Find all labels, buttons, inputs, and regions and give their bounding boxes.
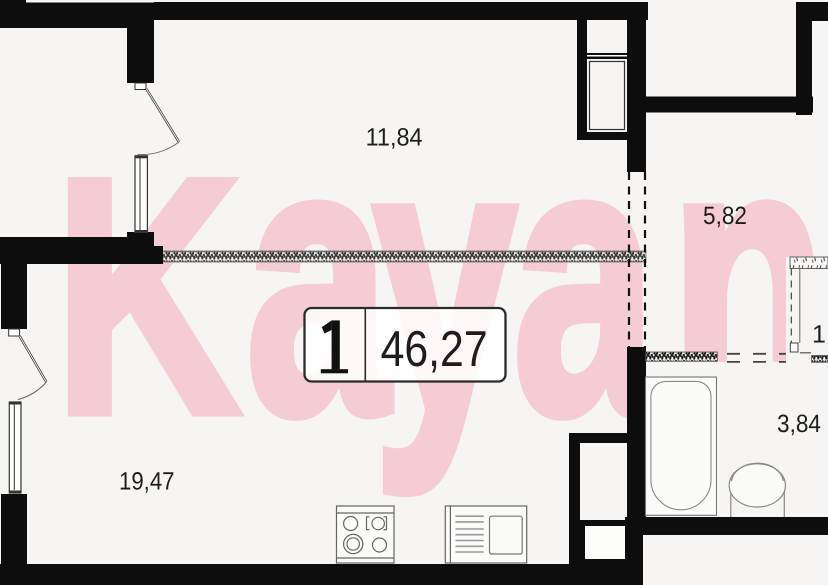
svg-text:5,82: 5,82 (703, 202, 747, 230)
svg-text:1,2: 1,2 (812, 321, 828, 349)
svg-text:19,47: 19,47 (119, 468, 175, 496)
svg-text:3,84: 3,84 (777, 410, 821, 438)
svg-text:11,84: 11,84 (366, 124, 423, 152)
svg-text:46,27: 46,27 (381, 320, 488, 377)
